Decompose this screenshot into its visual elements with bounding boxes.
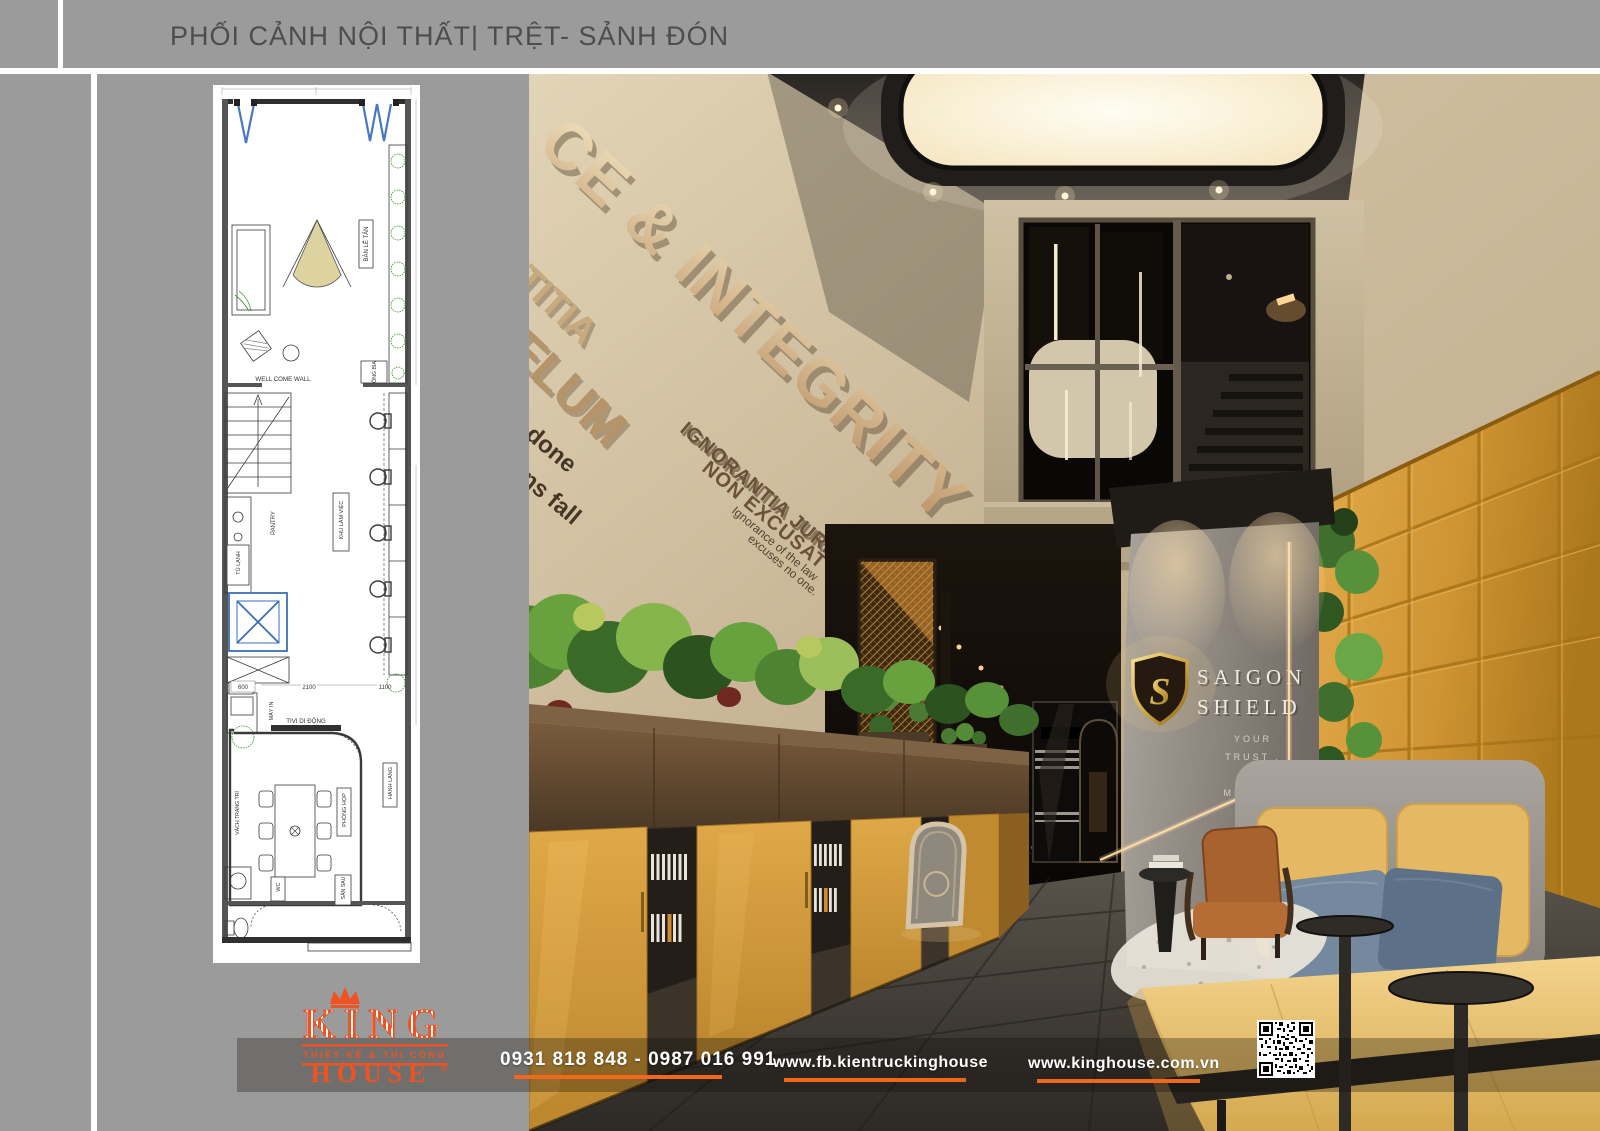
plan-elevator	[229, 593, 287, 651]
plan-label-printer: MÁY IN	[268, 702, 275, 721]
entry-door-symbols	[238, 104, 391, 143]
presentation-board: PHỐI CẢNH NỘI THẤT| TRỆT- SẢNH ĐÓN	[0, 0, 1600, 1131]
plan-label-reception-desk: BÀN LỄ TÂN	[363, 227, 370, 262]
header-divider-line	[58, 0, 63, 68]
page-title: PHỐI CẢNH NỘI THẤT| TRỆT- SẢNH ĐÓN	[170, 21, 729, 52]
logo-name: KING	[303, 1002, 447, 1048]
skylight	[881, 72, 1345, 186]
plan-plants	[391, 154, 405, 379]
horizontal-divider-line	[0, 68, 1600, 74]
left-divider-line	[91, 74, 97, 1131]
plan-office-chairs	[370, 413, 391, 653]
shield-monogram: S	[1149, 671, 1170, 713]
floor-plan-drawing: BÀN LỄ TÂN WELL COME WALL ỐNG BIA PANTRY…	[213, 85, 420, 963]
registered-mark: ®	[440, 1064, 448, 1075]
plan-label-corridor: HÀNH LANG	[387, 767, 394, 799]
interior-render: CE & INTEGRITY CE & INTEGRITY TITIA TITI…	[529, 72, 1600, 1131]
qr-code	[1257, 1020, 1315, 1078]
plan-toilet	[234, 918, 248, 938]
plan-label-meeting-room: PHÒNG HỌP	[341, 793, 348, 827]
plan-dim-600: 600	[238, 685, 249, 691]
phone-numbers: 0931 818 848 - 0987 016 991	[500, 1049, 776, 1071]
plan-dim-2100: 2100	[302, 685, 316, 691]
plan-label-beer-shelf: ỐNG BIA	[371, 361, 378, 383]
phone-underline	[514, 1075, 722, 1079]
plan-sofa	[232, 225, 270, 315]
plan-label-welcome-wall: WELL COME WALL	[255, 376, 311, 383]
website-url: www.kinghouse.com.vn	[1028, 1055, 1220, 1073]
logo-name2: HOUSE	[310, 1059, 431, 1084]
floor-plan: BÀN LỄ TÂN WELL COME WALL ỐNG BIA PANTRY…	[213, 85, 420, 963]
plan-stairs	[225, 393, 291, 493]
mezzanine-window	[1021, 220, 1313, 502]
facebook-underline	[784, 1078, 966, 1082]
brand-tagline-1: YOUR	[1234, 734, 1272, 744]
brand-name-line2: SHIELD	[1197, 695, 1302, 719]
facebook-url: www.fb.kientruckinghouse	[773, 1054, 988, 1072]
website-underline	[1037, 1079, 1200, 1083]
plan-label-decor-partition: VÁCH TRANG TRÍ	[234, 791, 241, 835]
king-house-logo: KING THIẾT KẾ & THI CÔNG HOUSE ®	[288, 980, 463, 1084]
plan-label-backyard: SÂN SAU	[340, 876, 347, 899]
plan-label-work-area: KHU LÀM VIỆC	[337, 501, 345, 540]
plan-label-mobile-tv: TIVI DI ĐỘNG	[286, 718, 326, 725]
plan-label-fridge: TỦ LẠNH	[235, 551, 242, 575]
plan-label-pantry: PANTRY	[271, 511, 277, 535]
arch-mirror	[908, 823, 965, 930]
plan-label-wc: WC	[276, 882, 282, 891]
plan-dim-1100: 1100	[379, 685, 393, 691]
